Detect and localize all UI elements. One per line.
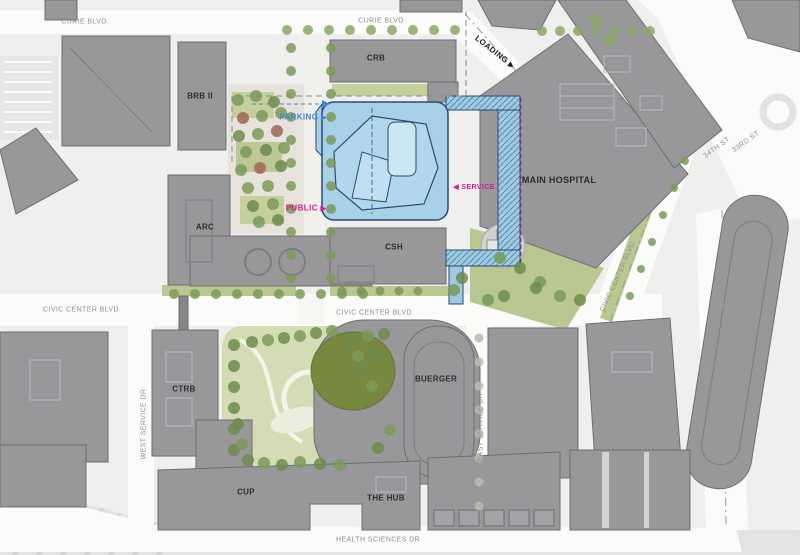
building-cup bbox=[158, 461, 420, 530]
building-csh bbox=[330, 228, 446, 284]
site-plan-map: CURIE BLVD CURIE BLVD CIVIC CENTER BLVD … bbox=[0, 0, 800, 555]
building-top-mid bbox=[400, 0, 462, 12]
building-top-left-corner bbox=[45, 0, 77, 20]
building-bottom-right bbox=[570, 450, 690, 530]
building-the-hub bbox=[428, 452, 560, 530]
new-building-footprint bbox=[316, 102, 448, 220]
building-top-left-square bbox=[62, 36, 170, 146]
building-brb bbox=[178, 42, 226, 150]
site-plan-basemap bbox=[0, 0, 800, 555]
surface-parking-lot bbox=[0, 56, 58, 140]
